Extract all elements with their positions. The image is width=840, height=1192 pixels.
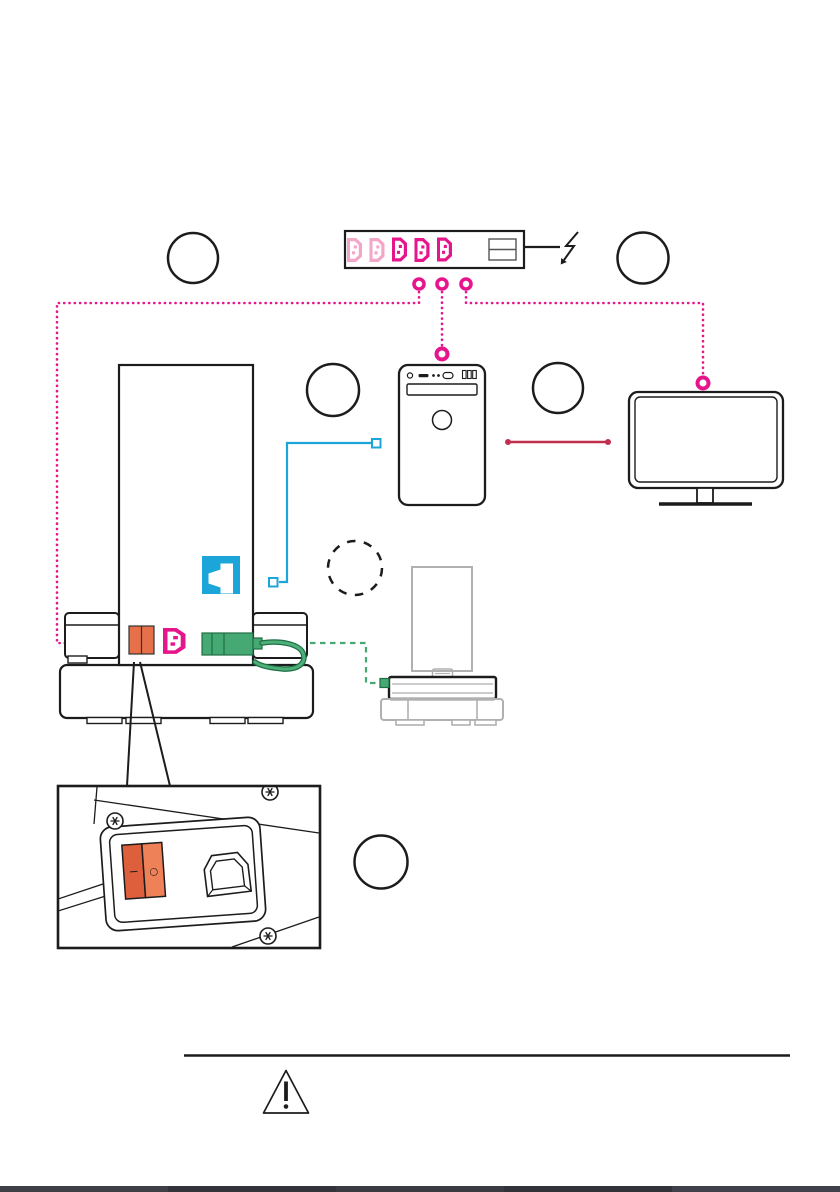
machine-foot: [87, 718, 122, 724]
callout-circle-dashed: [328, 541, 382, 595]
computer: [399, 365, 485, 505]
plug-ring-icon: [414, 279, 424, 289]
machine-foot: [210, 718, 245, 724]
computer-body: [399, 365, 485, 505]
rocker-switch: − ○: [122, 842, 166, 899]
plug-ring-icon: [461, 279, 471, 289]
data-cable-line: [279, 443, 376, 582]
machine-base: [60, 665, 313, 718]
port-dot-icon: [437, 374, 440, 377]
page-edge-segment: [168, 1186, 336, 1192]
video-cable-end: [605, 439, 611, 445]
video-cable-link: [505, 439, 611, 445]
plug-ring-monitor-icon: [698, 378, 709, 389]
callout-circle-6: [355, 836, 408, 889]
page-edge-segment: [0, 1186, 168, 1192]
accessory-cable-link: [310, 643, 389, 688]
dock-foot: [452, 720, 470, 725]
page-edge-segment: [672, 1186, 840, 1192]
inset-panel: − ○: [100, 817, 267, 932]
diagram-artwork: − ○: [0, 0, 840, 1192]
port-dash-icon: [419, 374, 429, 377]
monitor-bezel: [629, 392, 783, 488]
torx-screw-icon: [260, 928, 276, 944]
machine-data-port-icon: [202, 556, 240, 594]
callout-circle-1: [168, 233, 218, 283]
machine-left-wing: [65, 613, 119, 663]
torx-screw-icon: [107, 813, 123, 829]
dock-device: [381, 567, 503, 725]
video-cable-end: [505, 439, 511, 445]
warning-triangle-icon: [264, 1071, 309, 1114]
wing-notch: [68, 656, 87, 663]
lightning-bolt-icon: [561, 232, 578, 265]
monitor: [629, 392, 783, 504]
data-cable-connector-icon: [269, 578, 278, 587]
strip-switch-icon: [489, 239, 516, 260]
machine-tower-body: [119, 365, 253, 665]
dock-base: [381, 699, 503, 720]
data-cable-link: [269, 439, 381, 587]
dock-foot: [396, 720, 424, 725]
page-edge-segment: [504, 1186, 672, 1192]
main-machine: [60, 365, 313, 786]
accessory-cable-line: [310, 643, 381, 683]
page-edge-bar: [0, 1186, 840, 1192]
power-cord-right: [466, 292, 703, 375]
port-dot-icon: [432, 374, 435, 377]
detail-inset: − ○: [58, 784, 320, 948]
monitor-stand-neck: [697, 488, 713, 503]
footer-section: [184, 1056, 790, 1114]
callout-circle-4: [533, 363, 583, 413]
plug-ring-icon: [437, 279, 447, 289]
rocker-on-symbol: −: [128, 864, 139, 879]
machine-foot: [248, 718, 283, 724]
callout-circle-3: [307, 364, 359, 416]
dock-tower: [412, 567, 472, 671]
page-edge-segment: [336, 1186, 504, 1192]
machine-power-switch: [129, 626, 154, 654]
setup-diagram-page: − ○: [0, 0, 840, 1192]
accessory-plug: [380, 679, 389, 688]
callout-circle-2: [618, 233, 669, 284]
power-strip: [345, 231, 578, 268]
dock-foot: [475, 720, 496, 725]
rocker-off-symbol: ○: [149, 866, 158, 878]
data-cable-connector-icon: [372, 439, 381, 448]
plug-ring-computer-icon: [437, 349, 448, 360]
dock-bar: [389, 677, 496, 699]
